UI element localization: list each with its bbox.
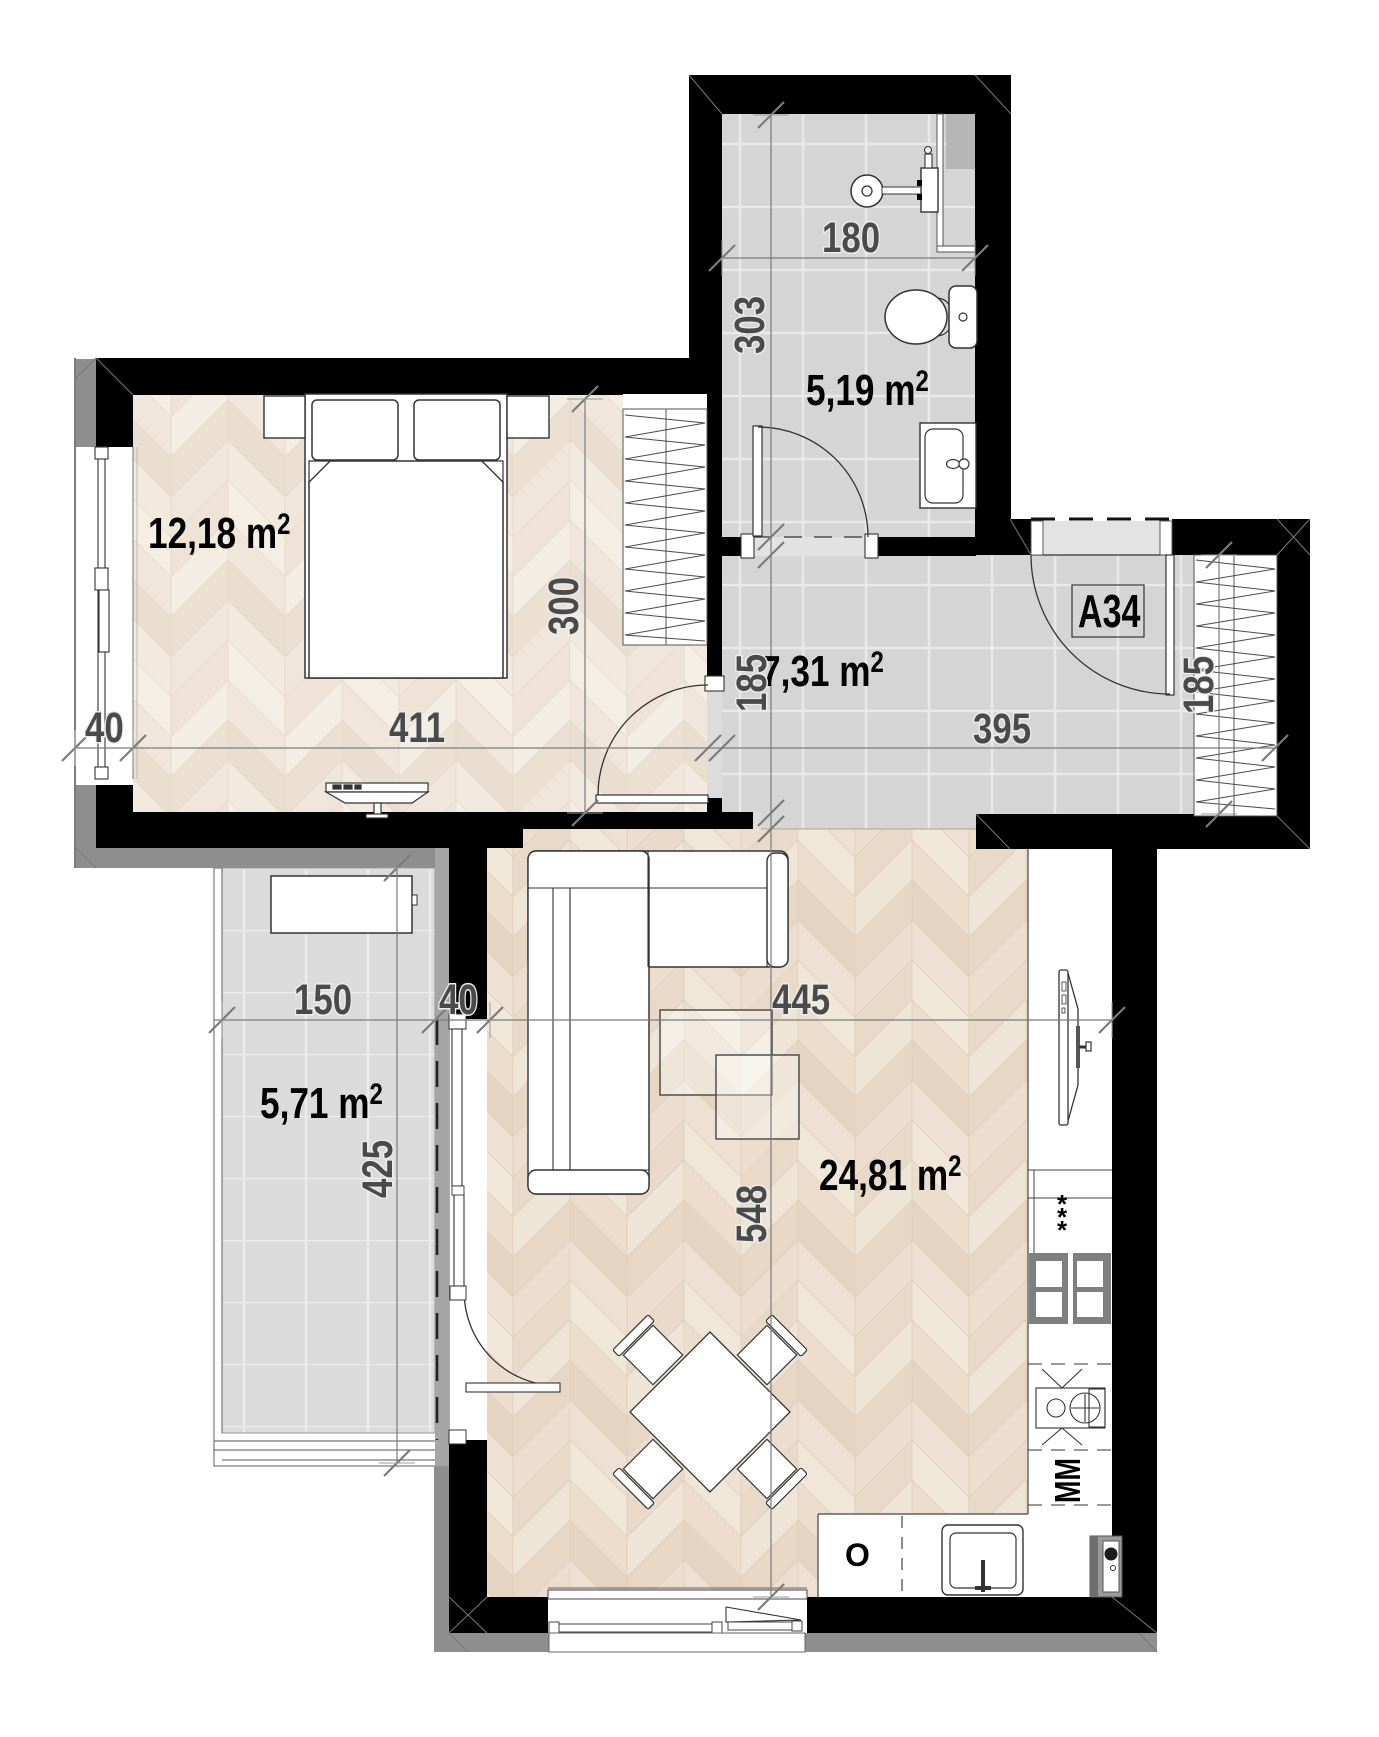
svg-text:40: 40: [439, 977, 478, 1024]
svg-text:185: 185: [1176, 656, 1223, 714]
svg-text:150: 150: [294, 977, 352, 1024]
svg-text:180: 180: [822, 215, 880, 262]
svg-text:40: 40: [85, 705, 124, 752]
svg-text:O: O: [845, 1537, 870, 1573]
svg-text:5,19 m2: 5,19 m2: [806, 363, 929, 415]
svg-text:185: 185: [729, 654, 776, 712]
svg-text:24,81 m2: 24,81 m2: [819, 1148, 961, 1200]
svg-text:445: 445: [772, 977, 830, 1024]
svg-text:303: 303: [727, 296, 774, 354]
svg-text:*: *: [1057, 1215, 1068, 1245]
svg-text:425: 425: [355, 1140, 402, 1198]
svg-text:300: 300: [541, 577, 588, 635]
svg-text:12,18 m2: 12,18 m2: [148, 506, 290, 558]
svg-text:7,31 m2: 7,31 m2: [761, 644, 884, 696]
svg-text:5,71 m2: 5,71 m2: [260, 1076, 383, 1128]
svg-text:MM: MM: [1047, 1458, 1088, 1503]
svg-text:395: 395: [973, 706, 1031, 753]
svg-text:411: 411: [389, 705, 445, 752]
svg-text:A34: A34: [1078, 585, 1141, 637]
svg-text:548: 548: [729, 1185, 776, 1243]
